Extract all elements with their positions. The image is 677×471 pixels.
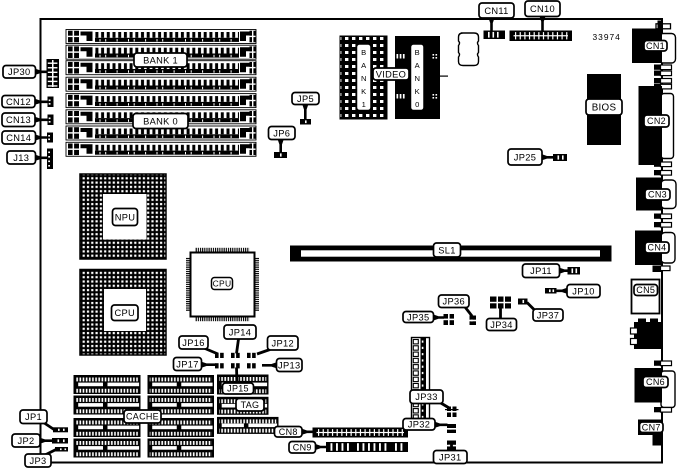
svg-text:B: B	[361, 48, 366, 57]
svg-text:JP3: JP3	[30, 456, 47, 466]
svg-text:B: B	[415, 48, 420, 57]
svg-text:JP16: JP16	[182, 338, 204, 348]
svg-text:VIDEO: VIDEO	[376, 69, 406, 79]
svg-text:JP13: JP13	[278, 360, 300, 370]
svg-text:JP2: JP2	[18, 436, 35, 446]
svg-text:CN14: CN14	[6, 133, 31, 143]
svg-text:CN9: CN9	[293, 442, 312, 452]
svg-text:CN12: CN12	[6, 97, 31, 107]
svg-text:CN11: CN11	[484, 6, 508, 16]
svg-text:CN4: CN4	[648, 243, 667, 253]
svg-text:JP11: JP11	[530, 266, 552, 276]
svg-text:NPU: NPU	[115, 212, 136, 222]
svg-text:JP15: JP15	[227, 384, 249, 394]
svg-text:JP34: JP34	[490, 320, 512, 330]
svg-text:SL1: SL1	[438, 245, 455, 255]
svg-text:JP6: JP6	[273, 128, 290, 138]
svg-text:JP17: JP17	[176, 359, 198, 369]
svg-text:33974: 33974	[593, 32, 621, 42]
svg-text:JP31: JP31	[439, 452, 461, 462]
svg-text:JP25: JP25	[514, 152, 536, 162]
svg-text:TAG: TAG	[241, 400, 260, 410]
svg-text:CN5: CN5	[636, 285, 655, 295]
svg-text:BANK 1: BANK 1	[143, 55, 178, 65]
svg-text:BIOS: BIOS	[592, 103, 617, 114]
svg-text:0: 0	[415, 100, 419, 109]
svg-text:JP12: JP12	[272, 338, 294, 348]
svg-text:CN7: CN7	[642, 422, 661, 432]
svg-text:CN6: CN6	[646, 377, 665, 387]
svg-text:CN1: CN1	[646, 41, 665, 51]
svg-text:CN8: CN8	[279, 427, 298, 437]
svg-text:CN10: CN10	[530, 4, 555, 14]
svg-text:CN2: CN2	[647, 116, 666, 126]
svg-text:CN13: CN13	[6, 115, 31, 125]
svg-text:JP36: JP36	[443, 297, 465, 307]
svg-text:BANK 0: BANK 0	[143, 116, 178, 126]
svg-text:K: K	[361, 87, 366, 96]
svg-text:JP1: JP1	[25, 412, 42, 422]
svg-text:JP35: JP35	[407, 312, 429, 322]
svg-text:CACHE: CACHE	[126, 412, 159, 422]
svg-text:JP10: JP10	[572, 286, 594, 296]
svg-text:K: K	[415, 87, 420, 96]
svg-text:N: N	[361, 74, 366, 83]
svg-text:JP37: JP37	[537, 310, 559, 320]
svg-text:CN3: CN3	[648, 190, 667, 200]
svg-text:JP33: JP33	[415, 392, 437, 402]
svg-text:JP5: JP5	[297, 94, 314, 104]
svg-text:JP14: JP14	[229, 327, 251, 337]
svg-text:CPU: CPU	[114, 308, 135, 318]
svg-text:1: 1	[362, 100, 366, 109]
svg-text:J13: J13	[13, 153, 29, 163]
svg-text:JP30: JP30	[8, 67, 30, 77]
svg-text:JP32: JP32	[408, 420, 430, 430]
svg-text:CPU: CPU	[213, 279, 232, 289]
svg-text:N: N	[414, 74, 419, 83]
